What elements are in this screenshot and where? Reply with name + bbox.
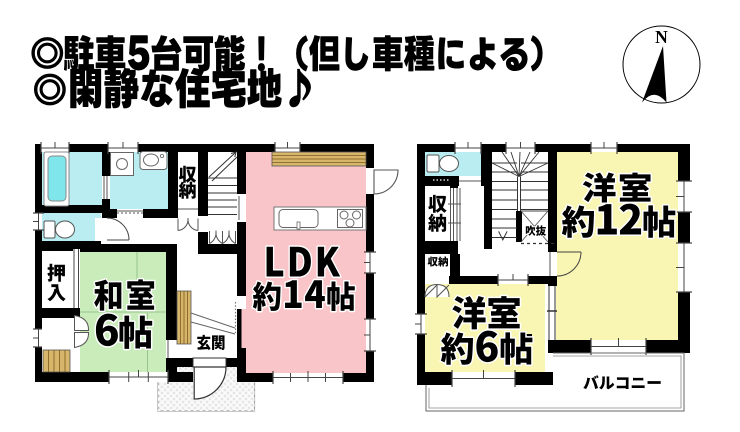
svg-text:N: N: [655, 27, 668, 47]
